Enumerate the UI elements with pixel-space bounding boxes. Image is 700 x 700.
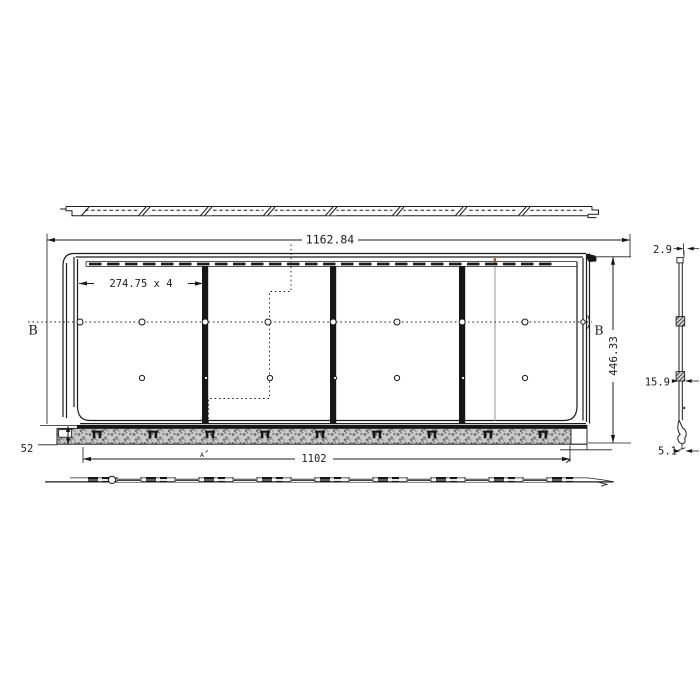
side-profile-foot-stem — [679, 444, 686, 450]
dimension-profile-mid: 15.9 — [645, 376, 699, 388]
bottom-profile-ring — [108, 476, 115, 483]
dimension-text: 52 — [21, 443, 34, 455]
lower-skirt: A — [57, 425, 612, 459]
arrowhead — [685, 449, 692, 453]
accent-tick — [494, 258, 496, 263]
panel-divider — [202, 266, 208, 423]
hole-marker — [333, 376, 336, 379]
joint-gaps — [139, 207, 530, 215]
hole-marker — [461, 376, 464, 379]
hole-marker — [522, 375, 527, 380]
extension-lines — [47, 234, 630, 424]
dimension-text: 2.9 — [653, 244, 672, 256]
top-profile-joint-slashes — [82, 207, 531, 216]
dimension-text: 274.75 x 4 — [109, 278, 172, 290]
arrowhead — [195, 281, 203, 285]
arrowhead — [622, 238, 630, 242]
hole-marker — [139, 375, 144, 380]
arrowhead — [79, 281, 87, 285]
bottom-profile-view — [45, 476, 614, 486]
front-view — [28, 245, 597, 426]
hole-marker — [394, 375, 399, 380]
hole-marker — [459, 319, 465, 325]
section-marker-left: B — [28, 324, 38, 339]
hole-marker — [267, 375, 272, 380]
arrowhead — [611, 435, 615, 443]
dimension-height-overall: 446.33 — [588, 257, 631, 443]
dimension-module-pitch: 274.75 x 4 — [79, 277, 203, 290]
dimension-text: 15.9 — [645, 376, 670, 388]
engineering-drawing: A 1162.84 274.75 x 4 — [0, 0, 700, 700]
cad-drawing-page: A 1162.84 274.75 x 4 — [0, 0, 700, 700]
hole-marker — [77, 319, 83, 325]
dimension-text: 1102 — [301, 453, 326, 465]
skirt-hatch — [57, 428, 571, 444]
detail-a-label: A — [200, 451, 204, 459]
detail-a-tick — [206, 450, 208, 452]
side-profile-view — [676, 251, 686, 450]
dimension-text: 1162.84 — [306, 232, 355, 246]
panel-divider — [330, 266, 336, 423]
section-cut-step-line — [209, 245, 292, 426]
skirt-right-step — [571, 428, 587, 444]
dimension-bottom-width: 1102 — [83, 446, 570, 466]
panel-divider — [459, 266, 465, 423]
hole-marker — [394, 319, 400, 325]
arrowhead — [677, 247, 684, 251]
detail-marker-a: A — [200, 450, 208, 459]
section-label-b-left: B — [28, 324, 38, 339]
side-profile-lines — [679, 258, 682, 421]
dimension-text: 446.33 — [607, 336, 620, 376]
hole-marker — [330, 319, 336, 325]
dimension-profile-bottom: 5.1 — [658, 446, 699, 458]
bottom-profile-blocks — [84, 477, 580, 482]
dimension-profile-top: 2.9 — [653, 243, 699, 256]
arrowhead — [687, 247, 694, 251]
hole-marker — [265, 319, 271, 325]
arrowhead — [83, 457, 91, 461]
hole-marker — [522, 319, 528, 325]
top-right-hook — [586, 254, 597, 263]
dimension-skirt-height: 52 — [21, 425, 77, 454]
section-label-b-right: B — [594, 323, 603, 338]
hole-marker — [581, 320, 585, 324]
hole-marker — [204, 376, 207, 379]
side-profile-foot — [678, 420, 686, 444]
side-profile-dot — [683, 407, 685, 409]
hole-marker — [202, 319, 208, 325]
arrowhead — [47, 238, 55, 242]
top-profile-view — [60, 207, 599, 218]
side-hatch-block — [676, 317, 685, 326]
skirt-top-band — [77, 425, 587, 428]
dimension-top-overall: 1162.84 — [47, 232, 630, 424]
hole-marker — [139, 319, 145, 325]
side-profile-cap — [677, 258, 683, 263]
arrowhead — [685, 379, 692, 383]
arrowhead — [611, 257, 615, 265]
side-hatch-block — [676, 372, 685, 381]
